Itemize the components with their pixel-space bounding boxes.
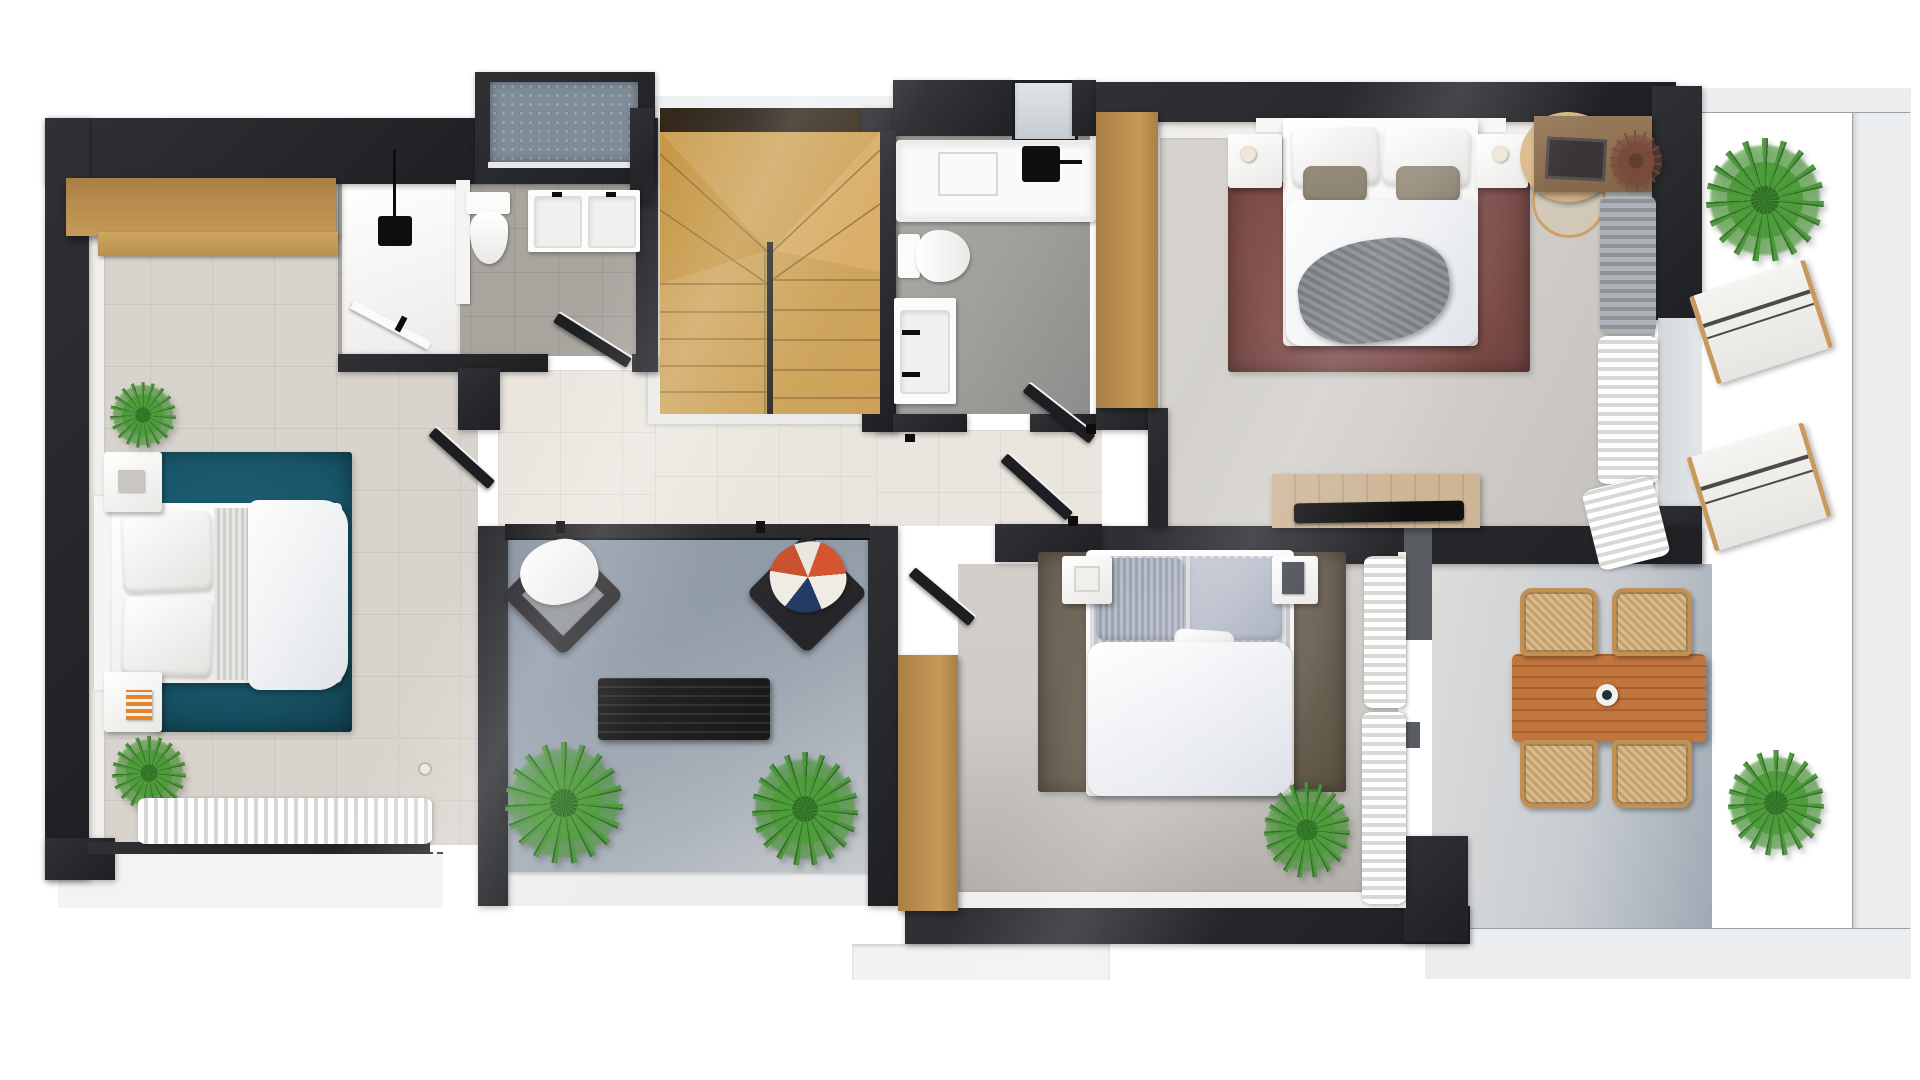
wall-bedroom2-south xyxy=(905,906,1470,944)
lounger-stripe xyxy=(1700,454,1808,491)
hallway-floor-west xyxy=(498,370,663,530)
bed-left-duvet xyxy=(248,500,348,690)
nightstand-left-top-deco xyxy=(118,470,144,492)
wall-bathroom2-north-east xyxy=(1072,80,1096,136)
glazing-handle-left xyxy=(556,521,565,533)
plant-bedroom2 xyxy=(1264,782,1350,878)
plant-bedleft-top xyxy=(110,382,176,448)
staircase xyxy=(660,132,880,414)
bathtub-mat-outline xyxy=(938,152,998,196)
vanity-plant xyxy=(1610,130,1662,192)
stoop-bottom-center xyxy=(852,944,1110,980)
wardrobe-tall-bedroom2 xyxy=(898,655,958,911)
wall-balcony-west xyxy=(478,526,508,906)
bed1-curtain-white-upper xyxy=(1598,336,1658,484)
glazing-handle-right xyxy=(756,521,765,533)
balcony-center-parapet xyxy=(508,872,868,906)
washer-top xyxy=(490,82,638,162)
balcony-plant-palm xyxy=(505,742,623,864)
vanity-desk-panel xyxy=(1545,136,1607,181)
terrace-parapet-top xyxy=(1702,88,1910,113)
toilet1-tank xyxy=(466,192,510,214)
bed1-pillow-accent-left xyxy=(1303,166,1367,202)
wall-bedroom2-east-corner xyxy=(1404,836,1468,942)
bed2-pillow-right xyxy=(1190,558,1282,640)
vanity1-basin-right xyxy=(588,196,636,248)
dining-chair-bottom-left xyxy=(1520,740,1598,808)
door-stop-2 xyxy=(1068,516,1078,526)
wall-bathroom1-south-west xyxy=(338,354,548,372)
wardrobe-long-top-left xyxy=(66,178,336,236)
staircase-glazing-strip xyxy=(660,108,882,134)
dining-chair-top-left xyxy=(1520,588,1598,656)
bed2-ns-right-book xyxy=(1282,562,1304,594)
table-vase-center xyxy=(1602,690,1612,700)
bed-left-pillow-top xyxy=(121,510,214,593)
floor-plan-canvas xyxy=(0,0,1920,1080)
sill-bottom-left xyxy=(58,852,443,908)
bedroom2-south-window-band xyxy=(958,892,1406,908)
vanity1-faucet-left xyxy=(552,192,562,197)
wall-bathroom2-north-west xyxy=(893,80,1012,136)
curtain-bedleft-window xyxy=(138,798,432,844)
wall-balcony-east xyxy=(868,526,898,906)
terrace-parapet-right xyxy=(1852,88,1911,978)
bedroom2-east-mullion-upper xyxy=(1404,528,1432,640)
bed1-pillow-accent-right xyxy=(1396,166,1460,202)
tv-flat xyxy=(1294,501,1464,524)
vanity2-faucet2 xyxy=(902,372,920,377)
dining-chair-top-right xyxy=(1612,588,1692,656)
bed1-lamp-left xyxy=(1240,146,1256,162)
wardrobe-tall-bathroom2 xyxy=(1096,112,1158,408)
wall-bedroom1-east-upper xyxy=(1652,86,1702,320)
bed1-curtain-gray xyxy=(1600,196,1656,334)
wall-bedroom-left-door-stub xyxy=(458,368,500,430)
wall-bathroom2-south-west xyxy=(893,414,967,432)
wall-top-left xyxy=(45,118,478,184)
door-stop-1 xyxy=(1086,424,1096,434)
vanity2-basin xyxy=(900,310,950,394)
terrace-parapet-bottom xyxy=(1425,928,1910,979)
vanity1-basin-left xyxy=(534,196,582,248)
balcony-plant-grass xyxy=(752,752,858,866)
wardrobe-long-shelf xyxy=(98,232,338,256)
bed1-nightstand-left xyxy=(1228,134,1282,188)
balcony-slat-bench xyxy=(598,678,770,740)
lounger-stripe xyxy=(1705,470,1813,505)
vanity2-faucet xyxy=(902,330,920,335)
wall-bedroom1-west-lower xyxy=(1148,408,1168,528)
bed-left-pillow-bottom xyxy=(121,596,214,677)
terrace-palm-top xyxy=(1706,138,1824,262)
bath-shower-bar xyxy=(1058,160,1082,164)
bed2-curtain-lower xyxy=(1362,712,1406,904)
entry-niche xyxy=(1012,80,1078,142)
door-stop-3 xyxy=(905,434,915,442)
bedroom2-east-mullion-mid xyxy=(1404,722,1420,748)
nightstand-book-orange xyxy=(126,690,152,720)
terrace-plant-dining xyxy=(1728,750,1824,856)
bath-shower-head-icon xyxy=(1022,146,1060,182)
dining-chair-bottom-right xyxy=(1612,740,1692,808)
bed2-duvet xyxy=(1088,642,1292,796)
shower-head-icon xyxy=(378,216,412,246)
vanity1-faucet-right xyxy=(606,192,616,197)
bed1-lamp-right xyxy=(1492,146,1508,162)
washer-counter-edge xyxy=(488,162,640,168)
bed2-curtain-upper xyxy=(1364,556,1406,708)
shower-pipe xyxy=(393,150,396,220)
bed2-ns-left-deco xyxy=(1074,566,1100,592)
hallway-floor-center xyxy=(655,414,880,530)
bed-left-headboard xyxy=(94,496,110,690)
